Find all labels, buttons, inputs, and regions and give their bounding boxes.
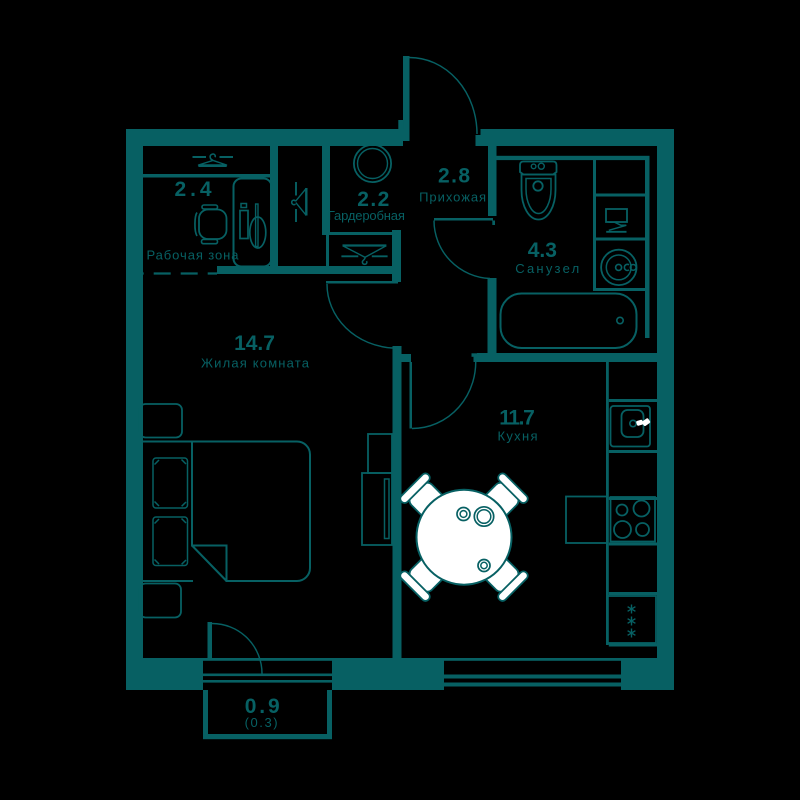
svg-text:2.8: 2.8 (438, 165, 470, 188)
svg-text:Гардеробная: Гардеробная (328, 208, 405, 223)
svg-text:4.3: 4.3 (528, 239, 557, 262)
svg-text:2.4: 2.4 (175, 178, 212, 201)
svg-text:11.7: 11.7 (499, 407, 535, 430)
svg-text:Прихожая: Прихожая (419, 190, 486, 205)
svg-text:14.7: 14.7 (234, 332, 275, 355)
svg-text:Кухня: Кухня (498, 429, 538, 444)
svg-text:(0.3): (0.3) (245, 715, 278, 730)
svg-text:Рабочая зона: Рабочая зона (147, 248, 240, 263)
svg-text:Жилая комната: Жилая комната (201, 356, 310, 371)
